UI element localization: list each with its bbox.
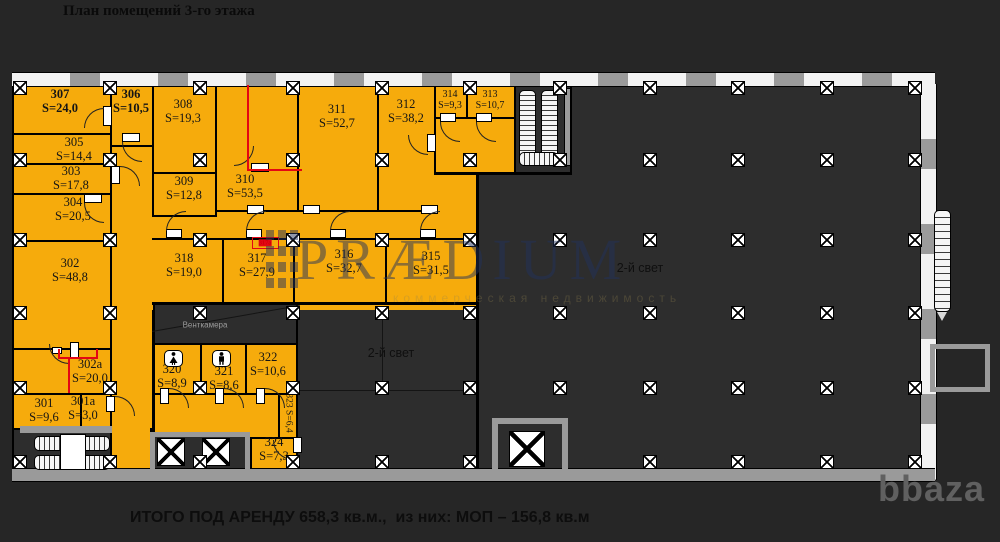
column-marker: [731, 381, 745, 395]
wc-woman-icon: [164, 350, 183, 367]
red-marking: [68, 357, 70, 393]
column-marker: [286, 306, 300, 320]
room-315-label: 315S=31,5: [413, 249, 449, 277]
wall: [12, 240, 112, 242]
column-marker: [286, 455, 300, 469]
room-308-label: 308S=19,3: [165, 97, 201, 125]
wall: [215, 84, 217, 217]
room-311-label: 311S=52,7: [319, 102, 355, 130]
column-marker: [908, 233, 922, 247]
wall: [250, 437, 252, 470]
room-318-label: 318S=19,0: [166, 251, 202, 279]
red-marking: [247, 85, 249, 171]
column-marker: [193, 306, 207, 320]
room-323-label: 323 S=6,4: [283, 393, 294, 432]
door-leaf: [84, 194, 102, 203]
door-leaf: [256, 388, 265, 404]
wall: [152, 84, 154, 215]
column-marker: [908, 455, 922, 469]
column-marker: [375, 81, 389, 95]
red-marking: [58, 357, 98, 359]
door-leaf: [70, 342, 79, 358]
column-marker: [731, 81, 745, 95]
wall: [293, 238, 295, 304]
column-marker: [553, 306, 567, 320]
column-marker: [820, 455, 834, 469]
wall: [110, 84, 112, 428]
column-marker: [103, 81, 117, 95]
stair-landing: [60, 434, 86, 470]
column-marker: [463, 81, 477, 95]
column-marker: [103, 153, 117, 167]
shaft-marker: [509, 431, 545, 467]
column-marker: [731, 153, 745, 167]
column-marker: [643, 306, 657, 320]
wc-man-icon: [212, 350, 231, 367]
column-marker: [375, 233, 389, 247]
door-leaf: [476, 113, 492, 122]
wall: [222, 238, 224, 304]
door-leaf: [122, 133, 140, 142]
red-marking: [96, 349, 98, 359]
column-marker: [13, 233, 27, 247]
column-marker: [103, 381, 117, 395]
column-marker: [643, 81, 657, 95]
column-marker: [553, 233, 567, 247]
room-305-label: 305S=14,4: [56, 135, 92, 163]
column-marker: [375, 381, 389, 395]
second-light-label-1: 2-й свет: [617, 261, 664, 275]
room-302-label: 302S=48,8: [52, 256, 88, 284]
wall: [434, 172, 572, 175]
door-leaf: [293, 437, 302, 453]
column-marker: [286, 233, 300, 247]
column-marker: [13, 455, 27, 469]
room-301-label: 301S=9,6: [29, 396, 59, 424]
red-marking: [58, 349, 60, 359]
room-314-label: 314S=9,3: [438, 89, 462, 111]
door-leaf: [440, 113, 456, 122]
wall: [12, 84, 14, 470]
floor-plan: 307S=24,0 306S=10,5 308S=19,3 311S=52,7 …: [0, 0, 1000, 542]
wall: [476, 172, 479, 470]
column-marker: [103, 455, 117, 469]
wall: [434, 84, 436, 174]
column-marker: [908, 81, 922, 95]
column-marker: [553, 153, 567, 167]
room-306-label: 306S=10,5: [113, 87, 149, 115]
second-light-label-2: 2-й свет: [368, 346, 415, 360]
column-marker: [820, 381, 834, 395]
column-marker: [286, 81, 300, 95]
bbaza-logo: bbaza: [878, 468, 985, 510]
column-marker: [463, 381, 477, 395]
column-marker: [553, 81, 567, 95]
landing-wall: [20, 426, 112, 433]
room-317-label: 317S=27,9: [239, 251, 275, 279]
column-marker: [731, 233, 745, 247]
room-316-label: 316S=32,7: [326, 247, 362, 275]
column-marker: [908, 381, 922, 395]
column-marker: [731, 306, 745, 320]
vent-chamber-label: Венткамера: [183, 321, 228, 330]
column-marker: [463, 153, 477, 167]
column-marker: [13, 81, 27, 95]
room-322-label: 322S=10,6: [250, 350, 286, 378]
red-marking: [247, 169, 302, 171]
column-marker: [286, 381, 300, 395]
wall: [152, 302, 478, 305]
room-317a-label: 317а: [259, 239, 272, 246]
column-marker: [13, 306, 27, 320]
column-marker: [820, 306, 834, 320]
column-marker: [13, 381, 27, 395]
ladder-arrow-icon: [937, 312, 947, 321]
exterior-annex-outline: [930, 344, 990, 392]
column-marker: [375, 153, 389, 167]
column-marker: [13, 153, 27, 167]
column-marker: [286, 153, 300, 167]
column-marker: [820, 81, 834, 95]
column-marker: [103, 233, 117, 247]
room-307-label: 307S=24,0: [42, 87, 78, 115]
wall: [12, 393, 114, 395]
column-marker: [908, 306, 922, 320]
total-rent-summary: ИТОГО ПОД АРЕНДУ 658,3 кв.м., из них: МО…: [130, 509, 590, 527]
column-marker: [643, 153, 657, 167]
column-marker: [375, 306, 389, 320]
wall: [377, 84, 379, 212]
column-marker: [193, 381, 207, 395]
elevator-car-marker: [157, 438, 185, 466]
column-marker: [820, 233, 834, 247]
door-leaf: [111, 166, 120, 184]
column-marker: [820, 153, 834, 167]
room-312-label: 312S=38,2: [388, 97, 424, 125]
room-310-label: 310S=53,5: [227, 172, 263, 200]
column-marker: [463, 455, 477, 469]
column-marker: [193, 233, 207, 247]
column-marker: [908, 153, 922, 167]
door-leaf: [103, 106, 112, 126]
room-309-label: 309S=12,8: [166, 174, 202, 202]
fire-escape-ladder: [934, 210, 951, 312]
column-marker: [463, 306, 477, 320]
door-leaf: [215, 388, 224, 404]
column-marker: [375, 455, 389, 469]
door-leaf: [427, 134, 436, 152]
room-301a-label: 301аS=3,0: [68, 394, 98, 422]
room-303-label: 303S=17,8: [53, 164, 89, 192]
column-marker: [103, 306, 117, 320]
column-marker: [193, 81, 207, 95]
door-leaf: [303, 205, 320, 214]
wall: [385, 238, 387, 304]
column-marker: [193, 455, 207, 469]
column-marker: [643, 381, 657, 395]
wall: [297, 84, 299, 212]
column-marker: [463, 233, 477, 247]
room-313-label: 313S=10,7: [476, 89, 505, 111]
column-marker: [643, 233, 657, 247]
door-leaf: [160, 388, 169, 404]
door-leaf: [106, 396, 115, 412]
column-marker: [643, 455, 657, 469]
column-marker: [553, 381, 567, 395]
column-marker: [731, 455, 745, 469]
column-marker: [193, 153, 207, 167]
wall: [245, 345, 247, 395]
floor-plan-page: План помещений 3-го этажа: [0, 0, 1000, 542]
